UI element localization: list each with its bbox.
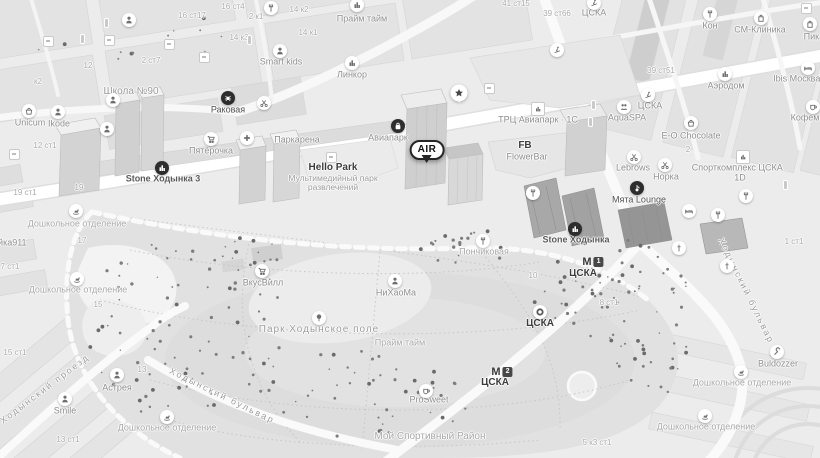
poi-label[interactable]: Кофемания [791,113,820,124]
person-icon[interactable] [51,105,65,119]
poi-dash-icon[interactable] [326,152,337,163]
scissors-icon[interactable] [658,158,672,172]
poi-label[interactable]: Линкор [337,70,367,81]
star-pin[interactable] [451,85,468,102]
park-tree-icon[interactable] [312,311,326,325]
church-cross-icon[interactable] [720,259,734,273]
restaurant-icon[interactable] [739,189,753,203]
pharmacy-cross-icon[interactable] [240,131,254,145]
building-dark-icon[interactable] [568,222,582,236]
house-number: к2 [34,77,42,87]
kindergarten-horse-icon[interactable] [69,204,83,218]
house-number: 16 ст17 [178,11,206,21]
house-number: 14 к1 [298,28,317,38]
poi-dash-icon[interactable] [9,149,20,160]
poi-label[interactable]: Норка [653,172,679,183]
house-number: 39 ст66 [543,9,571,19]
house-number: 14 к3 [229,33,248,43]
restaurant-icon[interactable] [476,234,490,248]
poi-label[interactable]: E-O Chocolate [661,131,720,142]
restaurant-icon[interactable] [264,1,278,15]
poi-dash-icon[interactable] [164,39,175,50]
house-number: 7 ст1 [1,262,20,272]
poi-label[interactable]: Дошкольное отделение [657,422,756,433]
air-pin[interactable]: AIR [410,140,445,160]
traffic-light-icon [105,19,108,27]
poi-label[interactable]: Ikode [48,119,70,130]
metro-station-label[interactable]: ЦСКА [481,377,509,389]
poi-label[interactable]: Кон [702,21,717,32]
restaurant-icon[interactable] [703,7,717,21]
poi-label[interactable]: Пончиковая [459,247,509,258]
poi-dash-icon[interactable] [199,52,210,63]
person-icon[interactable] [122,13,136,27]
poi-label[interactable]: Прайм тайм [337,14,387,25]
restaurant-icon[interactable] [526,186,540,200]
poi-label[interactable]: Мойка911 [0,238,27,249]
poi-label[interactable]: Дошкольное отделение [118,423,217,434]
person-icon[interactable] [110,368,124,382]
kindergarten-horse-icon[interactable] [160,410,174,424]
traffic-light-icon [248,36,251,44]
traffic-light-icon [784,181,787,189]
metro-m-icon: М [491,366,500,378]
house-number: 16 ст4 [221,2,244,12]
lock-icon[interactable] [391,119,405,133]
hotel-bed-icon[interactable] [682,204,696,218]
building-icon[interactable] [718,67,732,81]
metro-m-icon: М [582,256,591,268]
scissors-icon[interactable] [257,96,271,110]
poi-label[interactable]: Smart kids [260,57,303,68]
poi-label[interactable]: Дошкольное отделение [693,378,792,389]
metro-station-label[interactable]: ЦСКА [569,268,597,280]
poi-sublabel: развлечений [308,182,358,192]
metro-station-marker[interactable]: М 2 [491,366,512,378]
kindergarten-horse-icon[interactable] [70,272,84,286]
poi-label[interactable]: СМ-Клиника [734,25,786,36]
poi-label[interactable]: Дошкольное отделение [29,285,128,296]
poi-label[interactable]: ЦСКА [638,101,662,112]
supermarket-icon[interactable] [255,264,269,278]
house-number: 19 ст1 [13,188,36,198]
house-number: 2 ст7 [142,56,161,66]
person-icon[interactable] [388,274,402,288]
shop-bag-icon[interactable] [803,17,817,31]
house-number: 15 ст1 [3,348,26,358]
cafe-cup-icon[interactable] [806,100,820,114]
poi-dash-icon[interactable] [43,36,54,47]
poi-dash-icon[interactable] [104,35,115,46]
poi-label[interactable]: Пятёрочка [189,146,233,157]
metro-station-marker[interactable]: М 1 [582,256,603,268]
supermarket-icon[interactable] [204,132,218,146]
scissors-icon[interactable] [627,150,641,164]
mall-icon[interactable] [736,150,750,164]
metro-exit-label[interactable]: ЦСКА [526,318,554,330]
house-number: 14 к2 [289,5,308,15]
person-icon[interactable] [106,93,120,107]
metro-line-badge: 1 [594,257,604,267]
poi-label[interactable]: ВкусВилл [243,278,283,289]
house-number: 15 [94,300,103,310]
wrench-icon[interactable] [770,345,784,359]
building-icon[interactable] [345,56,359,70]
poi-label[interactable]: Мята Lounge [612,195,666,206]
mall-icon[interactable] [531,102,545,116]
shop-bag-icon[interactable] [754,11,768,25]
poi-label[interactable]: Stone Ходынка 3 [126,174,201,185]
poi-label[interactable]: AquaSPA [608,113,646,124]
person-icon[interactable] [58,392,72,406]
poi-label[interactable]: Мой Спортивный Район [374,431,485,443]
house-number: 2 к1 [249,12,264,22]
poi-label[interactable]: Lebrows [616,163,650,174]
poi-label[interactable]: Unicum [15,118,46,129]
sport-ski-icon[interactable] [641,88,655,102]
poi-label[interactable]: Buldozzer [758,359,798,370]
poi-sublabel: 1D [734,173,746,184]
building-dark-icon[interactable] [155,161,169,175]
church-cross-icon[interactable] [672,241,686,255]
hotel-bed-icon[interactable] [801,61,815,75]
house-number: 13 [138,365,147,375]
house-number: 39 ст51 [647,66,675,76]
house-number: 13 ст1 [56,435,79,445]
house-number: 19 [75,183,84,193]
poi-label[interactable]: Smile [54,406,77,417]
poi-label[interactable]: НиХаоМа [376,288,416,299]
person-icon[interactable] [100,122,114,136]
poi-label[interactable]: Авиапарк [368,133,408,144]
poi-label[interactable]: Паркарена [274,135,320,146]
poi-label[interactable]: Ibis Москва Д [773,74,820,85]
traffic-light-icon [589,118,592,126]
poi-label[interactable]: Прайм тайм [375,338,425,349]
sport-ski-icon[interactable] [550,43,564,57]
house-number: 1 ст1 [785,237,804,247]
poi-label[interactable]: FlowerBar [506,152,547,163]
map-canvas[interactable]: Школа №90 Раковая Пятёрочка Паркарена He… [0,0,820,458]
grocery-icon[interactable] [22,104,36,118]
spa-icon[interactable] [617,100,631,114]
house-number: 5 к3 ст1 [583,438,612,448]
poi-label[interactable]: Stone Ходынка [542,235,609,246]
traffic-light-icon [592,101,595,109]
metro-line-badge: 2 [503,367,513,377]
poi-label[interactable]: Пика [804,32,820,43]
grocery-icon[interactable] [684,116,698,130]
house-number: 8 ст1 [600,298,619,308]
person-icon[interactable] [273,44,287,58]
house-number: 41 ст15 [502,0,530,9]
traffic-light-icon [81,35,84,43]
cafe-cup-icon[interactable] [419,384,433,398]
crab-icon[interactable] [221,91,235,105]
poi-dash-icon[interactable] [801,3,812,14]
poi-dash-icon[interactable] [484,83,495,94]
restaurant-icon[interactable] [711,208,725,222]
poi-label[interactable]: Дошкольное отделение [28,219,127,230]
poi-label[interactable]: FB [518,140,531,152]
poi-label[interactable]: ТРЦ Авиапарк · 1С [498,115,578,126]
house-number: 12 ст1 [33,141,56,151]
park-name-label[interactable]: Парк Ходынское поле [259,324,379,336]
house-number: 12 [84,61,93,71]
poi-label[interactable]: Аэродом [707,81,744,92]
metro-exit-ring-icon[interactable] [533,305,547,319]
hookah-icon[interactable] [630,181,644,195]
kindergarten-horse-icon[interactable] [698,409,712,423]
house-number: 2 [686,145,690,155]
kindergarten-horse-icon[interactable] [734,365,748,379]
house-number: 10 [529,271,538,281]
house-number: 17 [78,236,87,246]
poi-label[interactable]: Раковая [211,105,245,116]
poi-label[interactable]: Астрея [102,383,132,394]
